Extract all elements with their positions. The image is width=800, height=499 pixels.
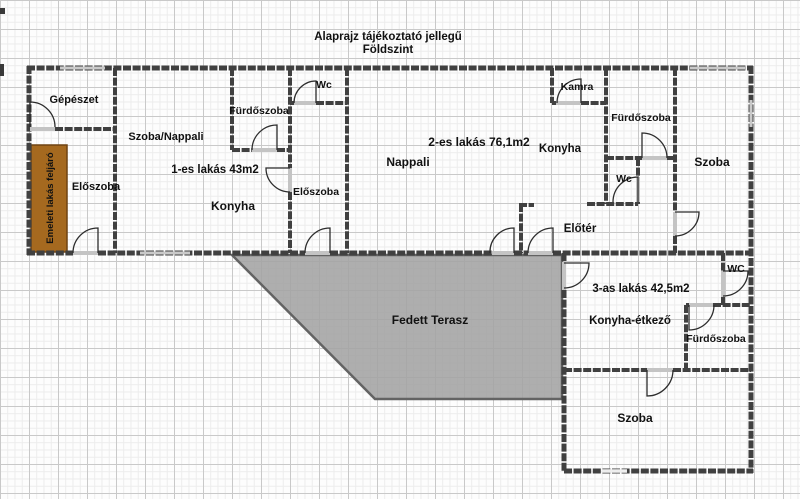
- room-label-furdoszoba-apt1: Fürdőszoba: [229, 105, 289, 117]
- room-label-nappali-apt2: Nappali: [386, 155, 429, 169]
- edge-mark: [0, 64, 4, 76]
- door-apt2-exit-left: [490, 228, 514, 253]
- door-bathroom-apt1: [252, 125, 277, 150]
- plan-subtitle: Földszint: [363, 44, 414, 56]
- door-apt2-exit-right: [528, 228, 553, 253]
- graph-paper-canvas: Alaprajz tájékoztató jellegű Földszint G…: [0, 0, 800, 499]
- room-label-szoba-nappali: Szoba/Nappali: [128, 131, 203, 143]
- door-hall-exit: [73, 228, 98, 253]
- door-eloszoba-apt1-exit: [305, 228, 330, 253]
- door-szoba-apt3: [647, 370, 673, 396]
- terrace-label: Fedett Terasz: [392, 313, 468, 327]
- door-szoba-apt2: [675, 212, 699, 236]
- door-bathroom-apt2: [642, 133, 667, 158]
- room-label-konyha-apt1: Konyha: [211, 199, 255, 213]
- room-label-wc-apt3: WC: [727, 263, 745, 275]
- room-label-kamra: Kamra: [561, 81, 594, 93]
- door-bathroom-apt3: [689, 305, 714, 330]
- room-label-furdoszoba-apt2: Fürdőszoba: [611, 112, 671, 124]
- door-eloszoba-apt1-side: [266, 168, 290, 192]
- room-label-stairs: Emeleti lakás feljáró: [45, 152, 56, 244]
- floor-plan-svg: Alaprajz tájékoztató jellegű Földszint G…: [0, 0, 800, 499]
- room-label-szoba-apt2: Szoba: [694, 155, 730, 169]
- room-label-gepeszet: Gépészet: [50, 94, 99, 106]
- room-label-furdoszoba-apt3: Fürdőszoba: [686, 333, 746, 345]
- plan-title: Alaprajz tájékoztató jellegű: [314, 31, 462, 43]
- apartment2-label: 2-es lakás 76,1m2: [428, 135, 530, 149]
- room-label-eloter: Előtér: [564, 223, 597, 235]
- room-label-konyha-apt2: Konyha: [539, 143, 582, 155]
- door-apt3-entrance: [564, 263, 589, 288]
- room-label-wc-apt1: Wc: [316, 79, 332, 91]
- room-label-eloszoba-common: Előszoba: [72, 181, 121, 193]
- room-label-konyha-etkezo: Konyha-étkező: [589, 315, 671, 327]
- room-label-eloszoba-apt1: Előszoba: [293, 186, 339, 198]
- door-wc-apt1: [294, 81, 316, 103]
- room-label-szoba-apt3: Szoba: [617, 411, 653, 425]
- apartment3-label: 3-as lakás 42,5m2: [592, 283, 689, 295]
- covered-terrace-area: [232, 255, 562, 399]
- room-label-wc-apt2: Wc: [616, 173, 632, 185]
- edge-mark: [0, 8, 5, 14]
- apartment1-label: 1-es lakás 43m2: [171, 164, 259, 176]
